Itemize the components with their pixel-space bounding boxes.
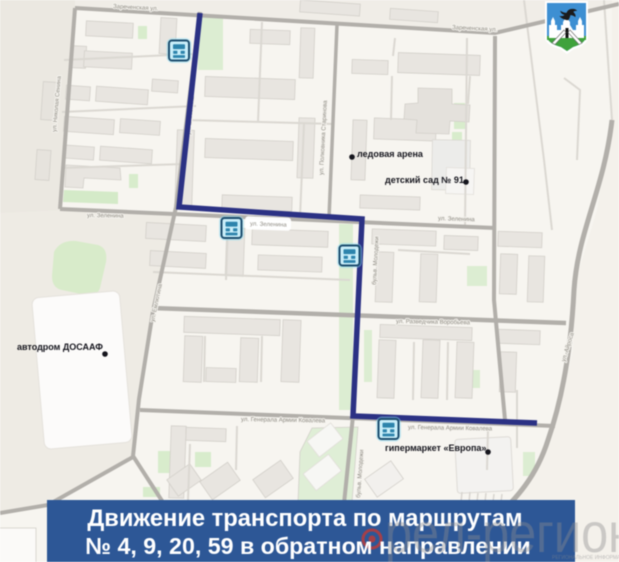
svg-text:автодром ДОСААФ: автодром ДОСААФ: [17, 342, 103, 352]
svg-text:рел-регион: рел-регион: [385, 501, 619, 562]
svg-text:РЕГИОНАЛЬНОЕ ИНФОРМАЦИОННОЕ: РЕГИОНАЛЬНОЕ ИНФОРМАЦИОННОЕ: [552, 555, 619, 561]
svg-text:ледовая арена: ледовая арена: [357, 149, 424, 159]
svg-text:детский сад № 91: детский сад № 91: [385, 175, 464, 185]
svg-text:гипермаркет «Европа»: гипермаркет «Европа»: [385, 443, 486, 453]
svg-text:ул. Зеленина: ул. Зеленина: [87, 213, 124, 220]
